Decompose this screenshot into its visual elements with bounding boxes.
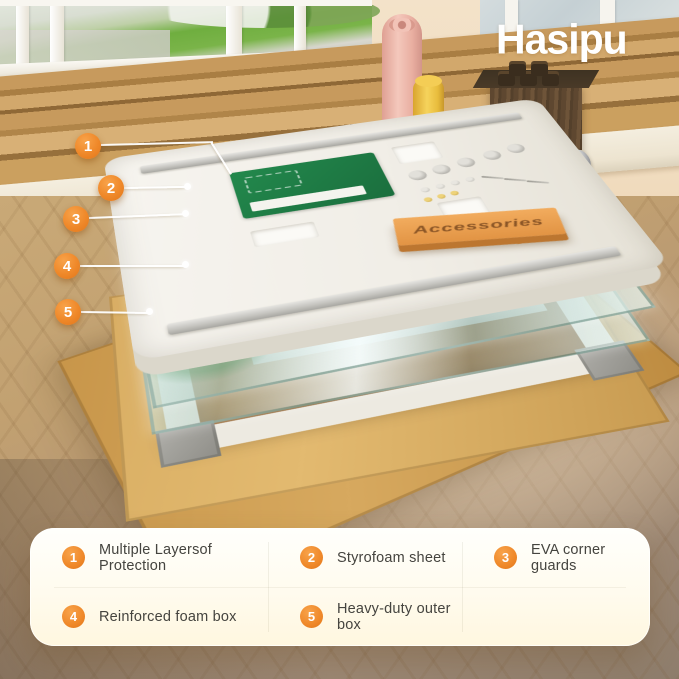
hardware-washer	[435, 183, 447, 189]
hardware-gold-washer	[449, 190, 459, 196]
accessories-box: Accessories	[393, 208, 567, 246]
legend-badge-4: 4	[62, 605, 85, 628]
legend-grid: 1 Multiple Layersof Protection 2 Styrofo…	[30, 528, 650, 646]
hardware-disc	[481, 150, 504, 161]
callout-line-4	[80, 265, 186, 267]
screw	[481, 176, 503, 179]
legend-panel: 1 Multiple Layersof Protection 2 Styrofo…	[30, 528, 650, 646]
window-frame-rail	[0, 0, 372, 6]
hardware-disc	[455, 157, 478, 169]
callout-badge-2: 2	[98, 175, 124, 201]
instruction-manual	[229, 152, 395, 219]
callout-badge-1: 1	[75, 133, 101, 159]
legend-label-2: Styrofoam sheet	[337, 550, 446, 566]
weight-plate	[509, 64, 526, 76]
legend-label-3: EVA corner guards	[531, 542, 650, 574]
legend-item-2: 2 Styrofoam sheet	[268, 528, 462, 587]
legend-item-3: 3 EVA corner guards	[462, 528, 650, 587]
legend-label-5: Heavy-duty outer box	[337, 601, 462, 633]
legend-item-5: 5 Heavy-duty outer box	[268, 587, 462, 646]
hardware-gold-washer	[423, 197, 433, 203]
callout-badge-5: 5	[55, 299, 81, 325]
hardware-washer	[464, 176, 476, 182]
callout-endpoint-dot	[146, 308, 153, 315]
hardware-washer	[420, 187, 432, 193]
legend-badge-1: 1	[62, 546, 85, 569]
legend-badge-3: 3	[494, 546, 517, 569]
legend-item-4: 4 Reinforced foam box	[30, 587, 268, 646]
callout-endpoint-dot	[184, 183, 191, 190]
hardware-gold-washer	[436, 194, 446, 200]
legend-badge-5: 5	[300, 605, 323, 628]
hardware-disc	[406, 169, 429, 181]
foam-recess	[250, 221, 320, 247]
legend-label-4: Reinforced foam box	[99, 609, 237, 625]
screw	[504, 178, 527, 181]
legend-label-1: Multiple Layersof Protection	[99, 542, 268, 574]
hardware-disc	[430, 164, 453, 176]
legend-item-1: 1 Multiple Layersof Protection	[30, 528, 268, 587]
product-packaging-infographic: Accessories 1 2 3 4 5 Hasipu 1 Multiple …	[0, 0, 679, 679]
callout-badge-4: 4	[54, 253, 80, 279]
callout-endpoint-dot	[182, 261, 189, 268]
brand-logo: Hasipu	[496, 16, 627, 64]
callout-endpoint-dot	[182, 210, 189, 217]
weight-plate	[531, 64, 548, 76]
screw	[527, 180, 550, 183]
exploded-packaging-scene: Accessories	[78, 88, 662, 512]
hardware-washer	[449, 180, 461, 186]
callout-badge-3: 3	[63, 206, 89, 232]
foam-recess	[391, 141, 444, 164]
hardware-disc	[505, 143, 528, 154]
accessories-box-label: Accessories	[412, 216, 546, 237]
legend-badge-2: 2	[300, 546, 323, 569]
